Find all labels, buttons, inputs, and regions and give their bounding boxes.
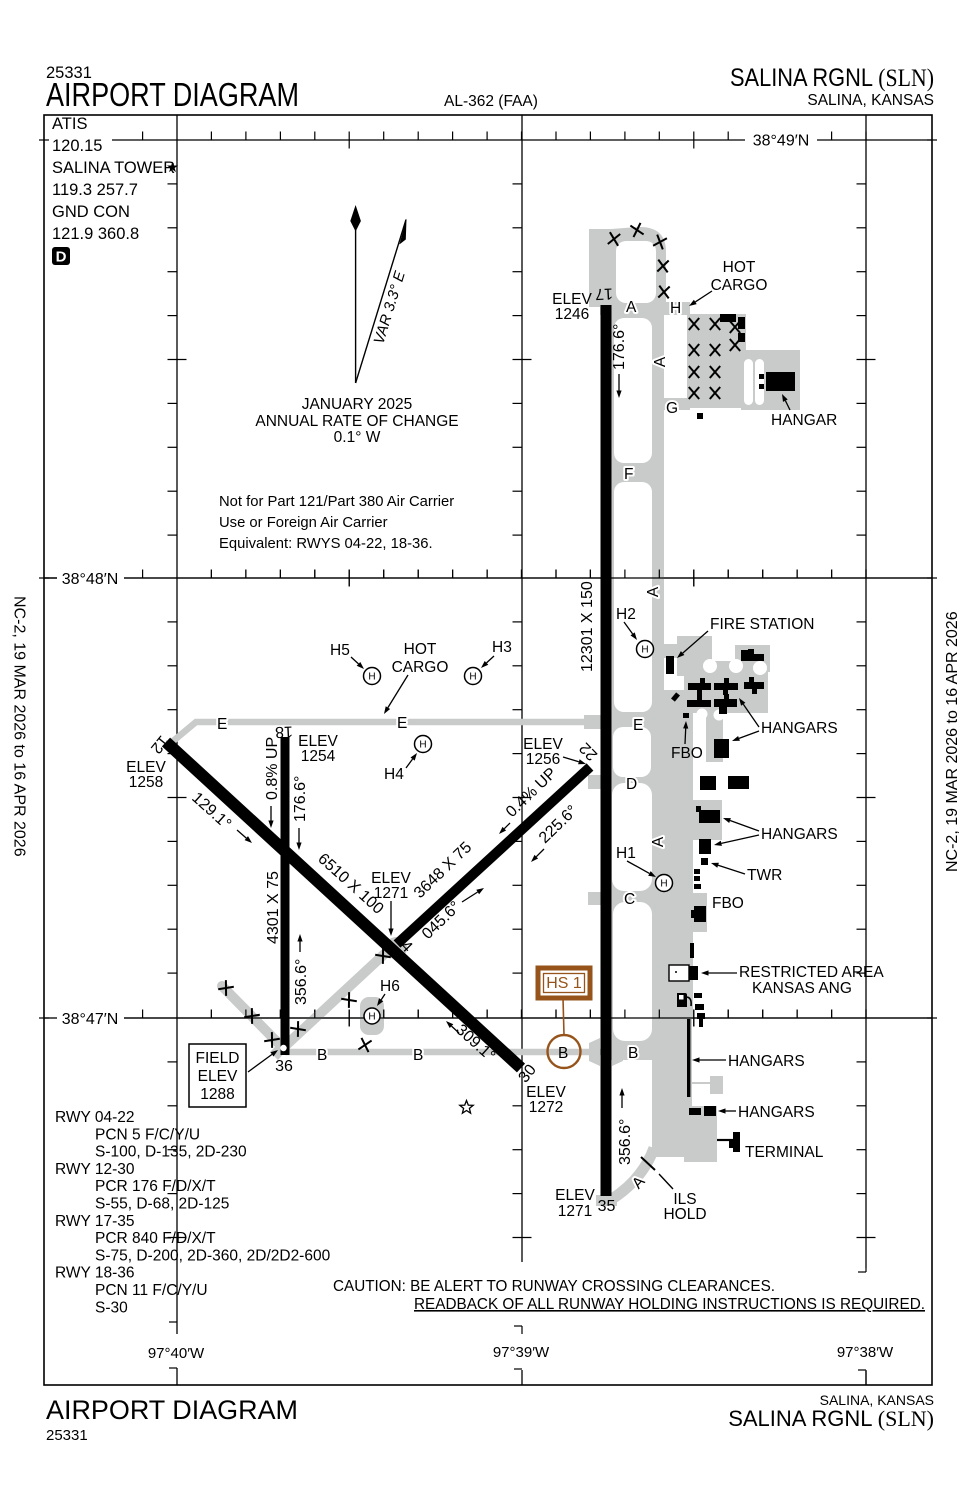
svg-text:356.6°: 356.6° [293,959,310,1005]
svg-text:CARGO: CARGO [711,277,768,294]
svg-text:E: E [633,717,643,734]
svg-text:H: H [641,645,648,656]
svg-text:3648 X 75: 3648 X 75 [411,839,475,902]
svg-text:S-75, D-200, 2D-360, 2D/2D2-60: S-75, D-200, 2D-360, 2D/2D2-600 [95,1247,331,1264]
svg-text:121.9 360.8: 121.9 360.8 [52,225,139,243]
svg-text:38°48′N: 38°48′N [62,571,119,588]
svg-text:FBO: FBO [712,895,744,912]
svg-text:C: C [624,891,635,908]
svg-text:HANGARS: HANGARS [728,1053,805,1070]
svg-text:S-30: S-30 [95,1299,128,1316]
svg-text:36: 36 [275,1058,293,1075]
svg-text:H6: H6 [380,978,400,995]
svg-text:12301 X 150: 12301 X 150 [579,581,596,672]
svg-text:176.6°: 176.6° [611,324,628,370]
svg-text:1256: 1256 [526,751,560,768]
svg-text:B: B [558,1045,568,1062]
svg-text:Not for Part 121/Part 380 Air: Not for Part 121/Part 380 Air Carrier [219,494,454,510]
svg-text:A: A [645,586,662,597]
svg-text:PCN 5 F/C/Y/U: PCN 5 F/C/Y/U [95,1126,200,1143]
svg-text:HANGARS: HANGARS [761,720,838,737]
svg-text:ELEV: ELEV [555,1187,595,1204]
svg-text:ELEV: ELEV [198,1068,238,1085]
svg-text:KANSAS ANG: KANSAS ANG [752,980,852,997]
svg-text:SALINA RGNL (SLN): SALINA RGNL (SLN) [728,1406,934,1431]
svg-text:A: A [652,356,669,367]
svg-text:RESTRICTED AREA: RESTRICTED AREA [739,964,884,981]
svg-text:HS 1: HS 1 [546,975,582,992]
svg-text:H: H [368,672,375,683]
svg-text:AL-362 (FAA): AL-362 (FAA) [444,93,538,110]
svg-text:H: H [670,300,681,317]
svg-text:120.15: 120.15 [52,137,102,155]
svg-text:H5: H5 [330,642,350,659]
svg-text:RWY 18-36: RWY 18-36 [55,1265,135,1282]
svg-text:H: H [660,879,667,890]
svg-text:S-55, D-68, 2D-125: S-55, D-68, 2D-125 [95,1196,229,1213]
svg-text:HANGARS: HANGARS [738,1104,815,1121]
svg-text:1271: 1271 [374,885,408,902]
svg-text:FBO: FBO [671,745,703,762]
svg-text:TWR: TWR [747,867,782,884]
svg-text:RWY 04-22: RWY 04-22 [55,1109,135,1126]
svg-text:HOT: HOT [404,641,437,658]
svg-text:JANUARY 2025: JANUARY 2025 [302,396,413,413]
svg-text:ANNUAL RATE OF CHANGE: ANNUAL RATE OF CHANGE [255,413,458,430]
svg-text:S-100, D-135, 2D-230: S-100, D-135, 2D-230 [95,1144,247,1161]
svg-text:0.1° W: 0.1° W [334,429,381,446]
svg-text:38°47′N: 38°47′N [62,1011,119,1028]
svg-text:SALINA RGNL (SLN): SALINA RGNL (SLN) [730,64,934,92]
svg-text:PCR 840 F/D/X/T: PCR 840 F/D/X/T [95,1230,216,1247]
svg-text:1272: 1272 [529,1099,563,1116]
svg-text:38°49′N: 38°49′N [753,133,810,150]
svg-text:HANGAR: HANGAR [771,412,837,429]
svg-text:H: H [419,740,426,751]
svg-text:FIELD: FIELD [196,1050,240,1067]
svg-text:NC-2, 19 MAR 2026 to 16 APR: NC-2, 19 MAR 2026 to 16 APR 2026 [944,611,961,872]
svg-text:H: H [469,672,476,683]
svg-text:25331: 25331 [46,1427,88,1444]
svg-text:H4: H4 [384,766,404,783]
svg-text:PCN 11 F/C/Y/U: PCN 11 F/C/Y/U [95,1282,208,1299]
svg-text:ATIS: ATIS [52,115,87,133]
svg-text:RWY 12-30: RWY 12-30 [55,1161,135,1178]
svg-text:SALINA TOWER: SALINA TOWER [52,159,175,177]
svg-text:GND CON: GND CON [52,203,130,221]
svg-text:READBACK OF ALL RUNWAY HOLDING: READBACK OF ALL RUNWAY HOLDING INSTRUCTI… [414,1296,925,1313]
svg-text:1271: 1271 [558,1203,592,1220]
svg-text:4301 X 75: 4301 X 75 [265,871,282,944]
svg-text:CAUTION: BE ALERT TO RUNWAY CR: CAUTION: BE ALERT TO RUNWAY CROSSING CLE… [333,1278,775,1295]
svg-text:HANGARS: HANGARS [761,826,838,843]
svg-text:H1: H1 [616,845,636,862]
svg-text:PCR 176 F/D/X/T: PCR 176 F/D/X/T [95,1178,216,1195]
svg-text:35: 35 [598,1198,616,1215]
svg-text:VAR 3.3° E: VAR 3.3° E [371,268,410,346]
svg-text:0.4% UP: 0.4% UP [503,765,560,821]
svg-text:12: 12 [147,732,171,757]
svg-text:B: B [317,1047,327,1064]
svg-text:E: E [397,715,407,732]
svg-text:SALINA, KANSAS: SALINA, KANSAS [807,92,934,109]
svg-text:E: E [217,716,227,733]
svg-text:CARGO: CARGO [392,659,449,676]
svg-text:B: B [628,1045,638,1062]
svg-text:F: F [624,466,633,483]
svg-text:1288: 1288 [200,1086,234,1103]
svg-text:AIRPORT DIAGRAM: AIRPORT DIAGRAM [46,1395,298,1425]
svg-text:TERMINAL: TERMINAL [745,1144,824,1161]
svg-text:1246: 1246 [555,306,589,323]
svg-text:97°38′W: 97°38′W [837,1344,894,1361]
svg-text:356.6°: 356.6° [617,1119,634,1165]
svg-text:G: G [666,400,678,417]
svg-text:176.6°: 176.6° [292,776,309,822]
svg-text:0.8% UP: 0.8% UP [264,737,281,800]
svg-text:Equivalent: RWYS 04-22, 18-36.: Equivalent: RWYS 04-22, 18-36. [219,536,433,552]
svg-text:NC-2, 19 MAR 2026 to 16 APR: NC-2, 19 MAR 2026 to 16 APR 2026 [11,596,28,857]
svg-text:H: H [368,1012,375,1023]
svg-text:RWY 17-35: RWY 17-35 [55,1213,135,1230]
svg-text:HOLD: HOLD [663,1206,706,1223]
svg-text:D: D [56,249,67,266]
svg-text:97°39′W: 97°39′W [493,1344,550,1361]
svg-text:FIRE STATION: FIRE STATION [710,616,814,633]
svg-text:17: 17 [595,284,614,302]
svg-text:★: ★ [166,160,179,176]
svg-text:A: A [626,299,637,316]
svg-text:A: A [650,836,667,847]
svg-text:H2: H2 [616,606,636,623]
svg-text:1258: 1258 [129,774,163,791]
svg-text:119.3 257.7: 119.3 257.7 [52,181,138,199]
svg-text:H3: H3 [492,639,512,656]
svg-text:HOT: HOT [723,259,756,276]
svg-text:D: D [626,776,637,793]
svg-text:1254: 1254 [301,748,336,765]
svg-text:97°40′W: 97°40′W [148,1345,205,1362]
svg-text:B: B [413,1047,423,1064]
svg-text:Use or Foreign Air Carrier: Use or Foreign Air Carrier [219,515,388,531]
svg-text:AIRPORT DIAGRAM: AIRPORT DIAGRAM [46,76,299,113]
